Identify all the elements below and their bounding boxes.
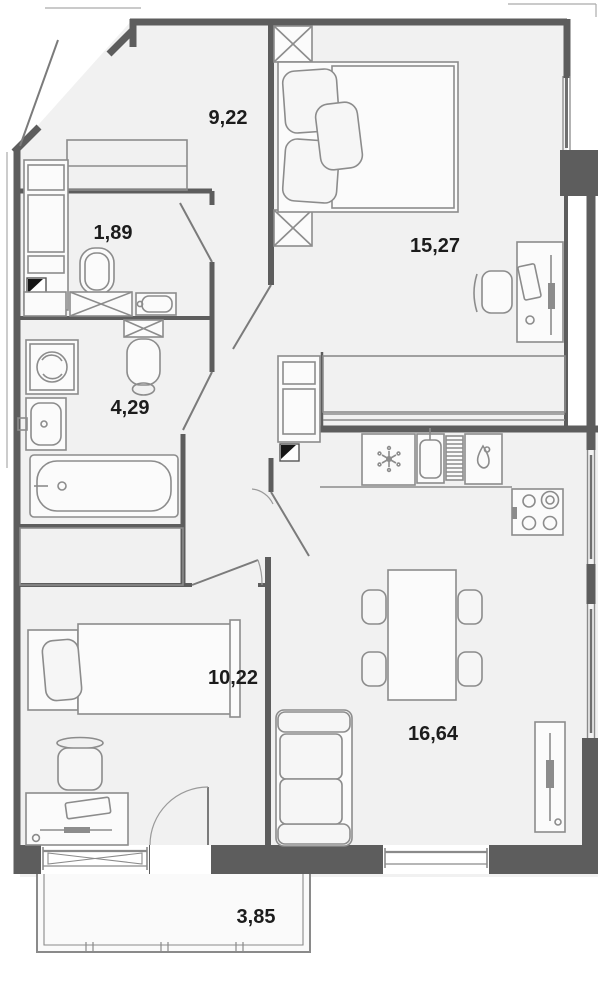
room-label-balcony: 3,85 [237,906,276,928]
wc-shelf-row [24,292,132,316]
floor-plan-page: 9,22 1,89 4,29 15,27 10,22 16,64 3,85 [0,0,600,981]
radiator-panel [535,722,565,832]
room-label-wc: 1,89 [94,222,133,244]
water-drop-unit [465,434,502,484]
room-label-hallway: 9,22 [209,107,248,129]
dishwasher-icon [446,436,463,480]
living-room-bottom-window [383,845,489,874]
wc-cabinet [24,160,68,310]
kitchen-sink-icon [417,428,444,483]
bedroom-1-desk [517,242,563,342]
dining-chair-icon [458,652,482,686]
dining-chair-icon [362,652,386,686]
bedroom-2-desk [26,793,128,845]
room-label-bedroom-2: 10,22 [208,667,258,689]
nightstand-icon [274,26,312,62]
washing-machine-icon [26,340,78,394]
bathroom-washbasin-icon [18,398,66,450]
double-bed-icon [278,62,458,212]
bathroom-vent-box [124,320,163,337]
bedroom-2-balcony-window [41,845,149,874]
refrigerator-icon [362,434,415,485]
stove-icon [512,489,563,535]
room-label-kitchen-living-room: 16,64 [408,723,459,745]
dining-chair-icon [458,590,482,624]
dining-table-icon [388,570,456,700]
wc-toilet-icon [80,248,114,294]
bathtub-icon [30,455,178,517]
floor-plan: 9,22 1,89 4,29 15,27 10,22 16,64 3,85 [0,0,600,981]
room-label-bathroom: 4,29 [111,397,150,419]
sofa-icon [276,710,352,846]
dining-chair-icon [362,590,386,624]
room-label-bedroom-1: 15,27 [410,235,460,257]
nightstand-icon [274,210,312,246]
wc-washbasin-icon [136,293,176,315]
